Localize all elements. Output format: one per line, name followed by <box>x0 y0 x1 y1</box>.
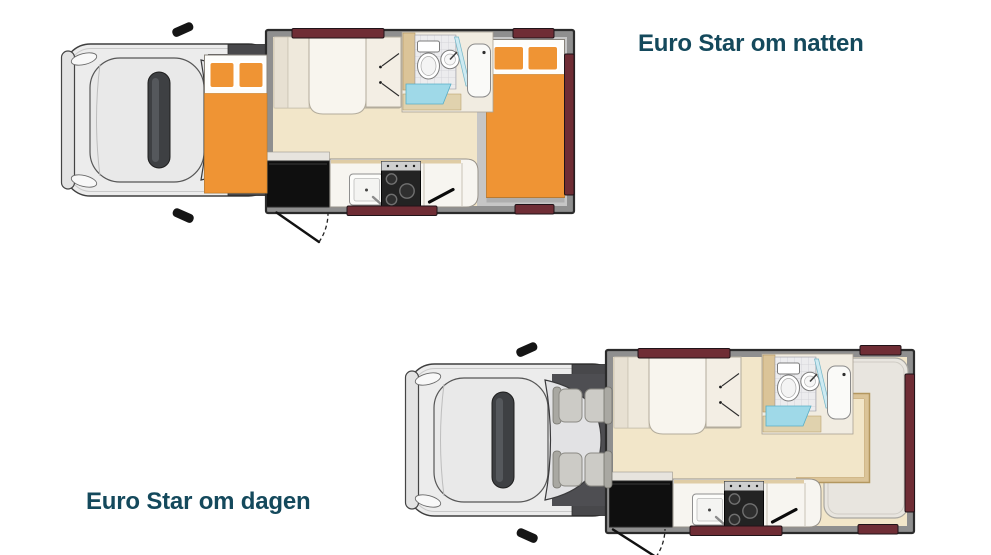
window-bar <box>515 205 554 215</box>
van-cab <box>406 341 620 544</box>
floorplan-page: Euro Star om natten Euro Star om dagen <box>0 0 991 555</box>
floorplan-night <box>62 21 575 242</box>
window-bar <box>292 29 384 39</box>
over-cab-bed <box>205 55 268 193</box>
window-bar <box>860 346 901 356</box>
pillow <box>528 46 559 71</box>
bathroom <box>762 354 853 434</box>
plan-title-night: Euro Star om natten <box>638 31 864 57</box>
front-sofa-bed <box>614 357 741 434</box>
kitchen <box>267 152 479 208</box>
pillow <box>239 62 264 88</box>
seat <box>559 389 582 422</box>
window-bar <box>858 525 898 535</box>
kitchen <box>610 472 822 528</box>
entry-door-swing <box>277 213 329 243</box>
window-bar <box>513 29 554 39</box>
window-bar <box>690 526 782 536</box>
bed-blanket <box>487 75 565 198</box>
rear-double-bed <box>487 40 565 203</box>
pillow <box>494 46 525 71</box>
floorplans-illustration <box>0 0 991 555</box>
window-bar <box>565 54 575 195</box>
window-bar <box>905 374 915 512</box>
window-bar <box>638 349 730 359</box>
plan-title-day: Euro Star om dagen <box>86 489 310 515</box>
bed-blanket <box>205 94 268 194</box>
window-bar <box>347 206 437 216</box>
floorplan-day <box>406 341 915 555</box>
pillow <box>210 62 235 88</box>
bathroom <box>402 32 493 112</box>
seat <box>559 453 582 486</box>
front-bed-and-wardrobe <box>274 37 401 114</box>
